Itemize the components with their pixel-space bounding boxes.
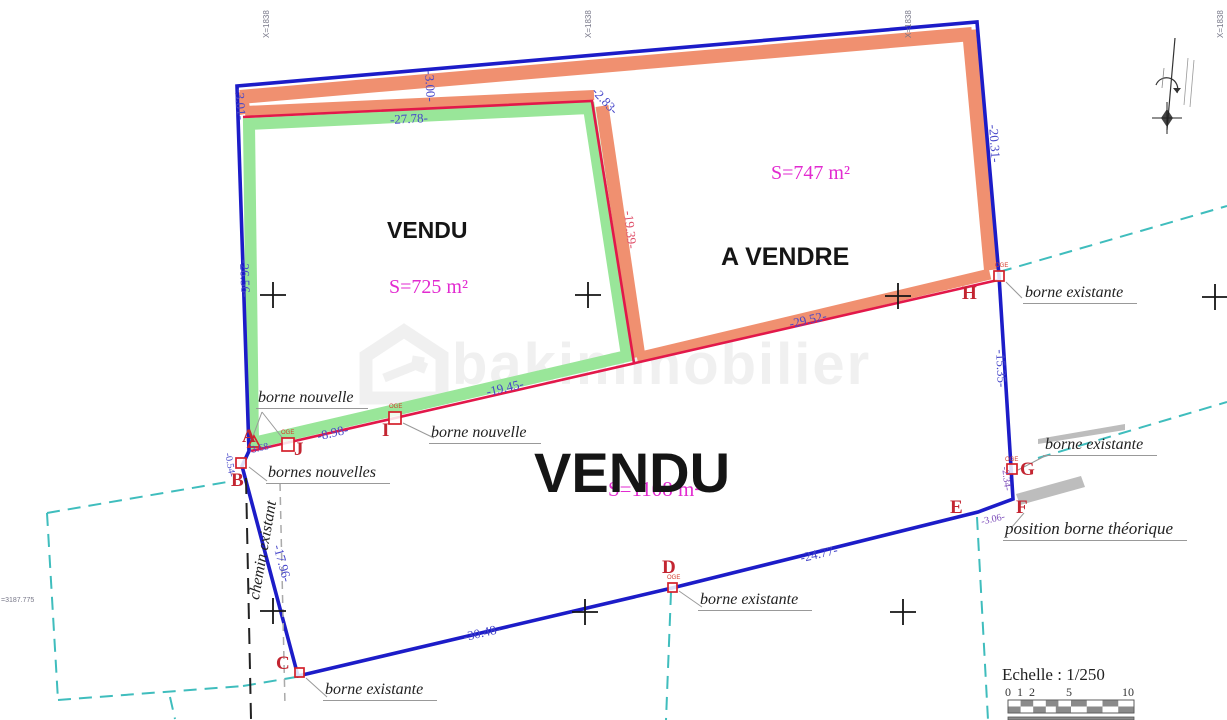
note-borne-existante-h: borne existante: [1023, 284, 1137, 304]
parcel-right-area: S=747 m²: [771, 162, 850, 185]
oge-tag-D: OGE: [667, 575, 680, 581]
borne-marker-H: [994, 271, 1004, 281]
coord-label-left: =3187.775: [1, 597, 34, 604]
point-H: H: [962, 283, 977, 305]
dim-strip-mid: -3.00-: [421, 70, 439, 102]
borne-marker-D: [668, 583, 677, 592]
scale-title: Echelle : 1/250: [1002, 665, 1105, 685]
coord-label-4: X=1838: [1216, 10, 1225, 38]
scale-tick-5: 5: [1066, 685, 1072, 700]
scale-tick-2: 2: [1029, 685, 1035, 700]
parcel-right-title: A VENDRE: [721, 243, 849, 272]
note-borne-nouvelle-i: borne nouvelle: [429, 424, 541, 444]
scale-tick-1: 1: [1017, 685, 1023, 700]
parcel-left-title: VENDU: [387, 217, 468, 244]
dim-right-mid: -15.35-: [992, 349, 1010, 388]
parcel-left-area: S=725 m²: [389, 276, 468, 299]
oge-tag-G: OGE: [1005, 457, 1018, 463]
note-borne-existante-d: borne existante: [698, 591, 812, 611]
borne-marker-C: [295, 668, 304, 677]
coord-label-3: X=1838: [904, 10, 913, 38]
point-E: E: [950, 497, 963, 519]
note-bornes-nouvelles: bornes nouvelles: [266, 464, 390, 484]
note-position-borne-theorique: position borne théorique: [1003, 519, 1187, 541]
borne-marker-B: [236, 458, 246, 468]
note-borne-existante-g: borne existante: [1043, 436, 1157, 456]
oge-tag-H: OGE: [995, 263, 1008, 269]
oge-tag-J: OGE: [281, 430, 294, 436]
dim-left-top: -3.01-: [231, 88, 249, 120]
point-A: A: [242, 426, 256, 448]
point-I: I: [382, 420, 389, 442]
point-G: G: [1020, 459, 1035, 481]
point-B: B: [231, 470, 244, 492]
north-arrow: [1152, 38, 1194, 134]
watermark-house-icon: [366, 331, 442, 398]
dim-right-top: -20.31-: [985, 124, 1004, 163]
dim-green-top: -27.78-: [390, 110, 429, 128]
coord-label-2: X=1838: [584, 10, 593, 38]
note-borne-nouvelle-aj: borne nouvelle: [256, 389, 368, 409]
point-C: C: [276, 653, 290, 675]
borne-marker-J: [282, 438, 294, 451]
coord-label-1: X=1838: [262, 10, 271, 38]
parcel-bottom-title: VENDU: [534, 440, 730, 505]
scale-tick-10: 10: [1122, 685, 1134, 700]
dim-left-mid: -26.56-: [236, 259, 253, 297]
scale-bar: [1008, 700, 1134, 720]
scale-tick-0: 0: [1005, 685, 1011, 700]
point-F: F: [1016, 497, 1028, 519]
point-J: J: [294, 439, 304, 461]
borne-marker-I: [389, 412, 401, 424]
survey-plan: bakimmobilier: [0, 0, 1227, 720]
oge-tag-I: OGE: [389, 404, 402, 410]
note-borne-existante-c: borne existante: [323, 681, 437, 701]
